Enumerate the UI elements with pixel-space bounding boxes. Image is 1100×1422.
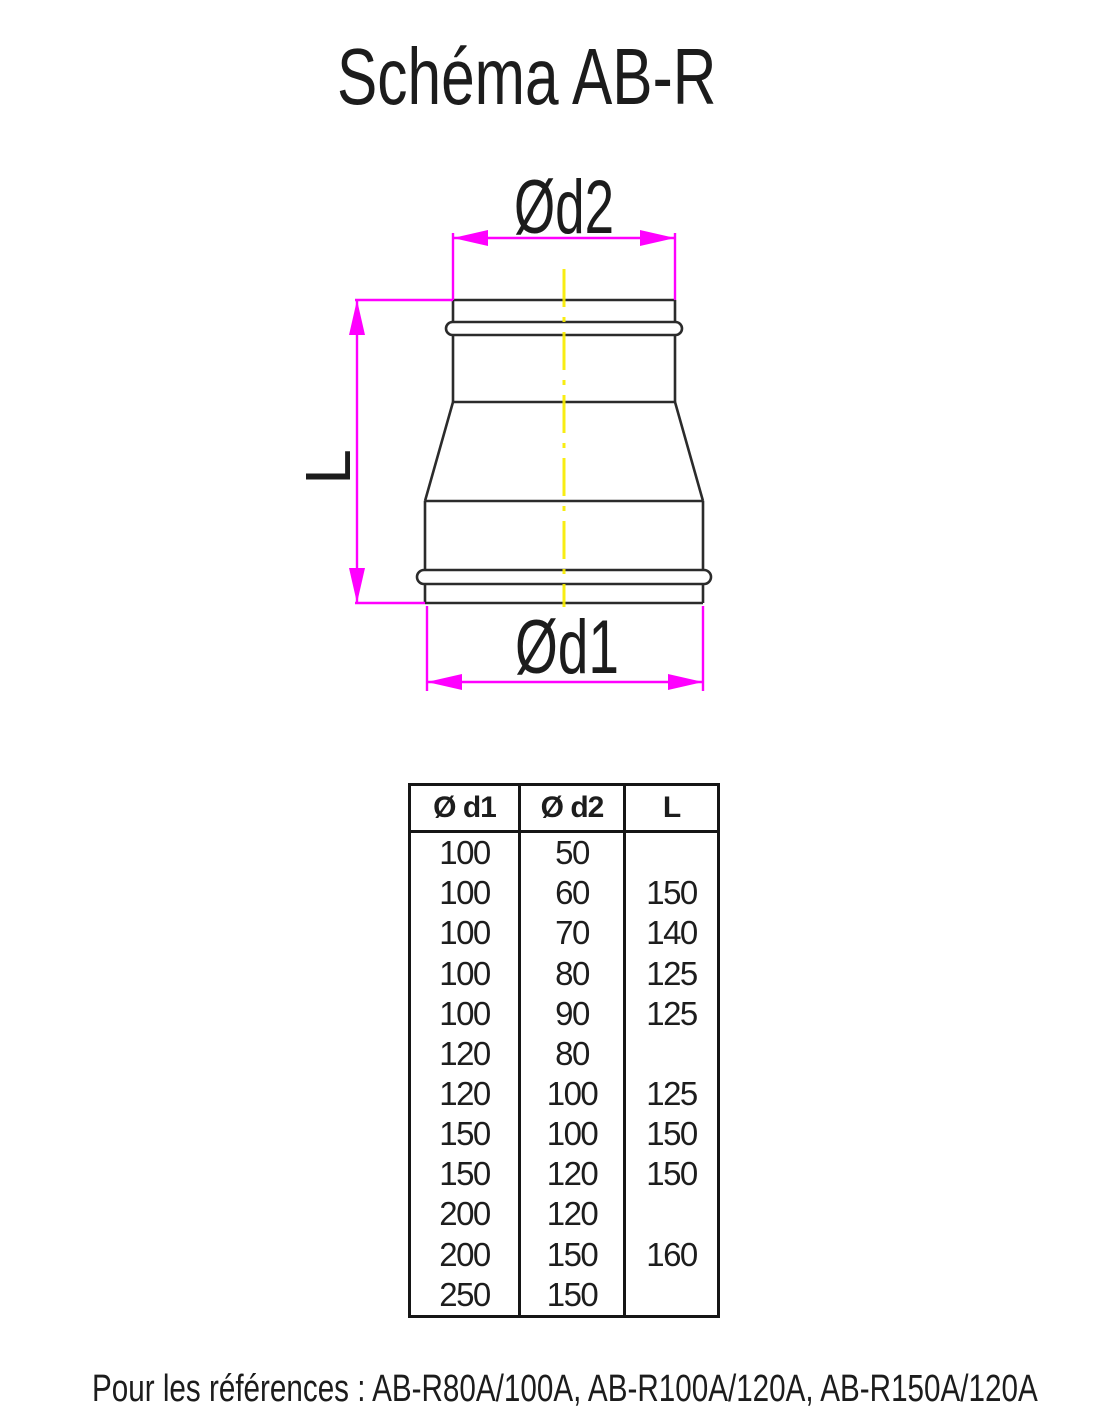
cell-d1: 100 (410, 832, 520, 874)
cell-d2: 120 (520, 1154, 625, 1194)
dimensions-table-container: Ø d1 Ø d2 L 100 50 100 60 150 100 (408, 783, 717, 1318)
d1-dimension-label: Ød1 (515, 605, 619, 690)
cell-d2: 150 (520, 1235, 625, 1275)
cell-d1: 120 (410, 1034, 520, 1074)
table-row: 200 120 (410, 1194, 719, 1234)
table-row: 100 90 125 (410, 994, 719, 1034)
cell-d2: 60 (520, 873, 625, 913)
d1-arrow-left (427, 674, 462, 690)
cell-l: 150 (625, 1114, 719, 1154)
cell-d2: 90 (520, 994, 625, 1034)
table-row: 100 70 140 (410, 913, 719, 953)
references-note: Pour les références : AB-R80A/100A, AB-R… (92, 1370, 1038, 1408)
cell-l (625, 832, 719, 874)
cell-l: 125 (625, 1074, 719, 1114)
table-row: 200 150 160 (410, 1235, 719, 1275)
table-row: 100 80 125 (410, 954, 719, 994)
d2-arrow-right (640, 230, 675, 246)
l-arrow-up (349, 300, 365, 335)
table-row: 150 120 150 (410, 1154, 719, 1194)
col-header-d2: Ø d2 (520, 785, 625, 832)
d1-arrow-right (668, 674, 703, 690)
table-row: 100 60 150 (410, 873, 719, 913)
table-row: 100 50 (410, 832, 719, 874)
col-header-l: L (625, 785, 719, 832)
cell-l: 125 (625, 954, 719, 994)
cell-l: 150 (625, 1154, 719, 1194)
cell-d2: 50 (520, 832, 625, 874)
dimensions-table: Ø d1 Ø d2 L 100 50 100 60 150 100 (408, 783, 720, 1318)
d2-dimension-label: Ød2 (514, 165, 614, 250)
cell-d2: 80 (520, 1034, 625, 1074)
cell-l: 160 (625, 1235, 719, 1275)
cell-d1: 250 (410, 1275, 520, 1317)
cell-d2: 80 (520, 954, 625, 994)
cell-d2: 150 (520, 1275, 625, 1317)
l-arrow-down (349, 568, 365, 603)
cell-l (625, 1034, 719, 1074)
cell-d2: 100 (520, 1114, 625, 1154)
table-row: 150 100 150 (410, 1114, 719, 1154)
cell-d2: 100 (520, 1074, 625, 1114)
cell-d1: 200 (410, 1235, 520, 1275)
cell-d1: 100 (410, 994, 520, 1034)
table-row: 120 100 125 (410, 1074, 719, 1114)
cell-d1: 100 (410, 873, 520, 913)
technical-drawing: Ød2 Ød1 L (0, 0, 1100, 760)
cell-l (625, 1275, 719, 1317)
cell-l: 140 (625, 913, 719, 953)
cell-d1: 200 (410, 1194, 520, 1234)
cell-d1: 150 (410, 1154, 520, 1194)
table-row: 250 150 (410, 1275, 719, 1317)
page: Schéma AB-R Ød2 Ød1 L (0, 0, 1100, 1422)
table-header-row: Ø d1 Ø d2 L (410, 785, 719, 832)
table-row: 120 80 (410, 1034, 719, 1074)
cell-d1: 100 (410, 913, 520, 953)
cell-d1: 150 (410, 1114, 520, 1154)
cell-d2: 120 (520, 1194, 625, 1234)
cell-l (625, 1194, 719, 1234)
cell-l: 150 (625, 873, 719, 913)
cell-l: 125 (625, 994, 719, 1034)
col-header-d1: Ø d1 (410, 785, 520, 832)
cell-d1: 100 (410, 954, 520, 994)
d2-arrow-left (453, 230, 488, 246)
cell-d2: 70 (520, 913, 625, 953)
cell-d1: 120 (410, 1074, 520, 1114)
length-dimension-label: L (292, 449, 364, 485)
